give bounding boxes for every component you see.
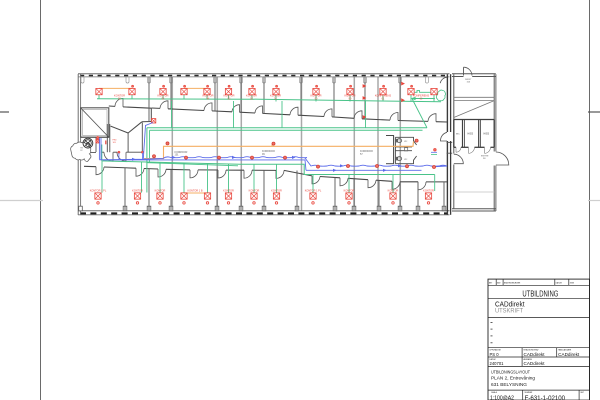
- svg-text:PS 0: PS 0: [490, 352, 500, 357]
- svg-text:KONTOR 1 B: KONTOR 1 B: [187, 189, 202, 192]
- svg-text:UTBILDNING: UTBILDNING: [522, 289, 558, 298]
- svg-text:KONTOR 1 PL: KONTOR 1 PL: [90, 189, 107, 192]
- svg-text:101: 101: [175, 153, 180, 156]
- svg-text:HISS: HISS: [468, 133, 474, 136]
- svg-text:CADdirekt: CADdirekt: [558, 352, 580, 357]
- svg-text:KONTOR: KONTOR: [271, 189, 282, 192]
- svg-text:PLAN 2, Entrevåning: PLAN 2, Entrevåning: [491, 375, 536, 381]
- svg-text:KONTOR: KONTOR: [132, 189, 143, 192]
- svg-text:1:100@A2: 1:100@A2: [490, 396, 514, 400]
- svg-text:F-631-1-02100: F-631-1-02100: [525, 395, 566, 400]
- svg-text:HISS: HISS: [484, 133, 490, 136]
- svg-text:CADdirekt: CADdirekt: [524, 352, 546, 357]
- svg-text:SKALA: SKALA: [491, 391, 497, 394]
- svg-text:UTSKRIFT: UTSKRIFT: [495, 308, 523, 315]
- svg-text:631 BELYSNING: 631 BELYSNING: [491, 382, 528, 387]
- svg-text:DATUM: DATUM: [556, 282, 562, 285]
- svg-text:NUMMER: NUMMER: [525, 392, 533, 394]
- svg-text:KONTOR: KONTOR: [423, 189, 434, 192]
- svg-text:ÄNDRINGEN AVSER: ÄNDRINGEN AVSER: [504, 282, 521, 285]
- svg-text:KONTOR: KONTOR: [249, 189, 260, 192]
- svg-text:KONTOR 1 PL: KONTOR 1 PL: [305, 189, 322, 192]
- svg-text:KONTOR: KONTOR: [388, 189, 399, 192]
- svg-text:F2: F2: [80, 150, 82, 152]
- svg-text:BET: BET: [489, 283, 492, 285]
- svg-text:WC: WC: [456, 134, 460, 136]
- svg-text:240701: 240701: [490, 361, 505, 366]
- svg-text:KONTOR: KONTOR: [344, 189, 355, 192]
- svg-text:ANT: ANT: [497, 282, 500, 285]
- svg-text:KONTOR: KONTOR: [155, 189, 166, 192]
- svg-text:KONTOR: KONTOR: [223, 189, 234, 192]
- svg-text:CADdirekt: CADdirekt: [524, 361, 546, 366]
- svg-text:UTBILDNINGSLAYOUT: UTBILDNINGSLAYOUT: [491, 369, 530, 374]
- svg-text:BET: BET: [581, 392, 584, 394]
